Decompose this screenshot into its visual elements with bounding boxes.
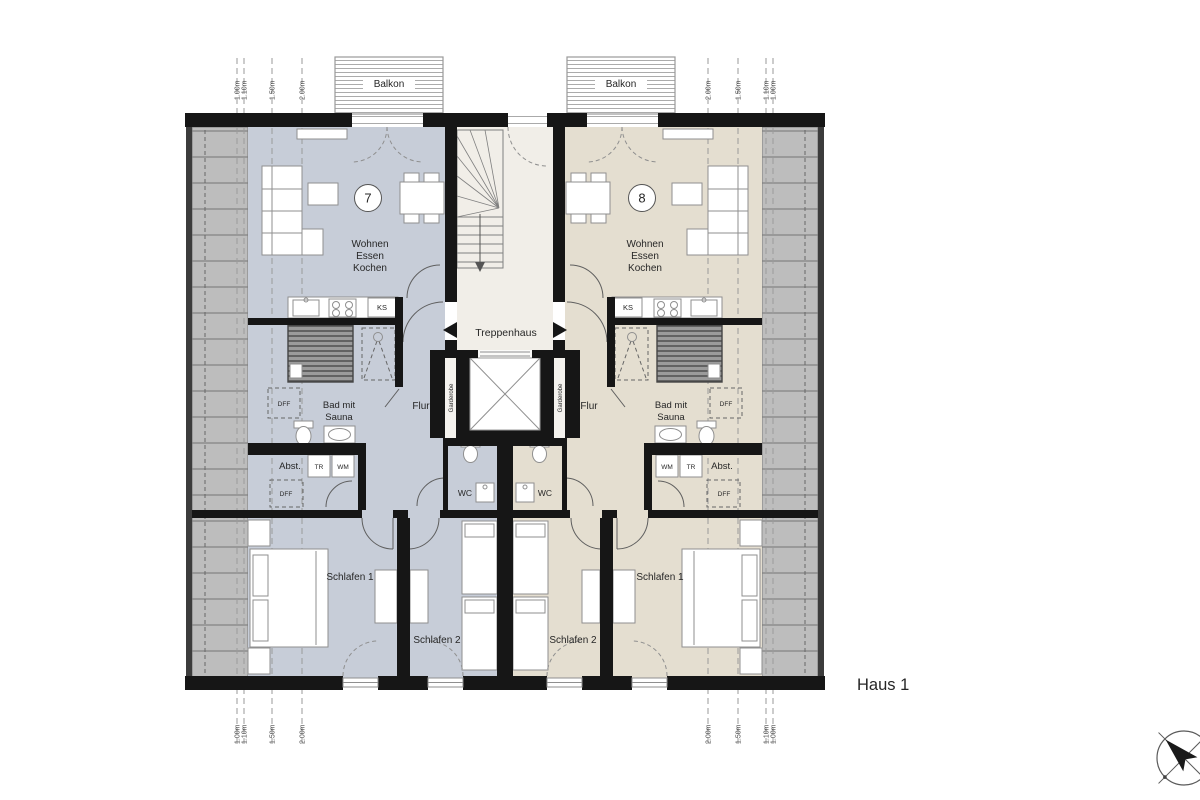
coffee-table — [308, 183, 338, 205]
floor-plan-drawing: Balkon Balkon — [0, 0, 1200, 800]
apartment-8-number: 8 — [638, 191, 645, 206]
wardrobe — [248, 520, 270, 546]
dim-label: 1.10m — [242, 80, 249, 100]
room-bath-8: Bad mit — [655, 400, 688, 411]
dim-label: 2.00m — [706, 80, 713, 100]
sofa-chaise — [302, 229, 323, 255]
dim-label: 1.10m — [764, 80, 771, 100]
dim-label: 2.00m — [300, 724, 307, 744]
balcony-left-label: Balkon — [374, 79, 405, 90]
washer-label-8: WM — [661, 464, 673, 471]
dim-label: 1.00m — [771, 724, 778, 744]
svg-text:Kochen: Kochen — [628, 263, 662, 274]
dryer-label-8: TR — [687, 464, 696, 471]
svg-text:Sauna: Sauna — [325, 412, 353, 423]
room-hall-7: Flur — [412, 401, 430, 412]
dim-label: 1.50m — [736, 724, 743, 744]
stairwell-label: Treppenhaus — [475, 327, 537, 339]
sofa-chaise — [687, 229, 708, 255]
washbasin — [476, 483, 494, 502]
roof-window-label: DFF — [280, 491, 293, 498]
room-bedroom1-8: Schlafen 1 — [636, 572, 684, 583]
sauna-heater — [708, 364, 720, 378]
desk — [410, 570, 428, 623]
dim-label: 1.50m — [270, 724, 277, 744]
toilet — [533, 446, 547, 463]
dim-label: 1.10m — [764, 724, 771, 744]
balcony-left: Balkon — [335, 57, 443, 114]
desk — [582, 570, 600, 623]
apartment-7-number: 7 — [364, 191, 371, 206]
wardrobe-label-right: Garderobe — [558, 383, 564, 412]
balcony-right: Balkon — [567, 57, 675, 114]
room-storage-7: Abst. — [279, 461, 301, 472]
svg-text:Essen: Essen — [356, 251, 384, 262]
room-hall-8: Flur — [580, 401, 598, 412]
dim-label: 2.00m — [706, 724, 713, 744]
dim-label: 1.50m — [270, 80, 277, 100]
room-bedroom1-7: Schlafen 1 — [326, 572, 374, 583]
dining-table — [400, 182, 444, 214]
building-title: Haus 1 — [857, 676, 909, 694]
room-living-7: Wohnen — [351, 239, 388, 250]
toilet — [699, 427, 714, 446]
roof-window-label: DFF — [278, 401, 291, 408]
dresser — [740, 648, 762, 674]
dim-label: 1.50m — [736, 80, 743, 100]
dim-label: 1.00m — [235, 80, 242, 100]
dim-label: 2.00m — [300, 80, 307, 100]
dim-label: 1.00m — [771, 80, 778, 100]
sauna-heater — [290, 364, 302, 378]
roof-strip-left — [192, 127, 248, 678]
roof-window-label: DFF — [718, 491, 731, 498]
wardrobe-label-left: Garderobe — [449, 383, 455, 412]
washer-label-7: WM — [337, 464, 349, 471]
dim-label: 1.10m — [242, 724, 249, 744]
dresser — [248, 648, 270, 674]
room-storage-8: Abst. — [711, 461, 733, 472]
fridge-label-7: KS — [377, 303, 387, 312]
desk — [375, 570, 397, 623]
balcony-right-label: Balkon — [606, 79, 637, 90]
toilet — [464, 446, 478, 463]
room-wc-7: WC — [458, 488, 472, 498]
roof-strip-right — [762, 127, 818, 678]
sideboard — [297, 129, 347, 139]
room-bedroom2-7: Schlafen 2 — [413, 635, 461, 646]
fridge-label-8: KS — [623, 303, 633, 312]
wardrobe — [740, 520, 762, 546]
toilet — [296, 427, 311, 446]
washbasin — [516, 483, 534, 502]
svg-text:Kochen: Kochen — [353, 263, 387, 274]
room-wc-8: WC — [538, 488, 552, 498]
coffee-table — [672, 183, 702, 205]
floor-plan-page: Balkon Balkon — [0, 0, 1200, 800]
dining-table — [566, 182, 610, 214]
sideboard — [663, 129, 713, 139]
elevator — [456, 352, 554, 438]
dim-label: 1.00m — [235, 724, 242, 744]
room-bedroom2-8: Schlafen 2 — [549, 635, 597, 646]
room-living-8: Wohnen — [626, 239, 663, 250]
dryer-label-7: TR — [315, 464, 324, 471]
svg-text:Sauna: Sauna — [657, 412, 685, 423]
svg-text:Essen: Essen — [631, 251, 659, 262]
roof-window-label: DFF — [720, 401, 733, 408]
room-bath-7: Bad mit — [323, 400, 356, 411]
desk — [613, 570, 635, 623]
